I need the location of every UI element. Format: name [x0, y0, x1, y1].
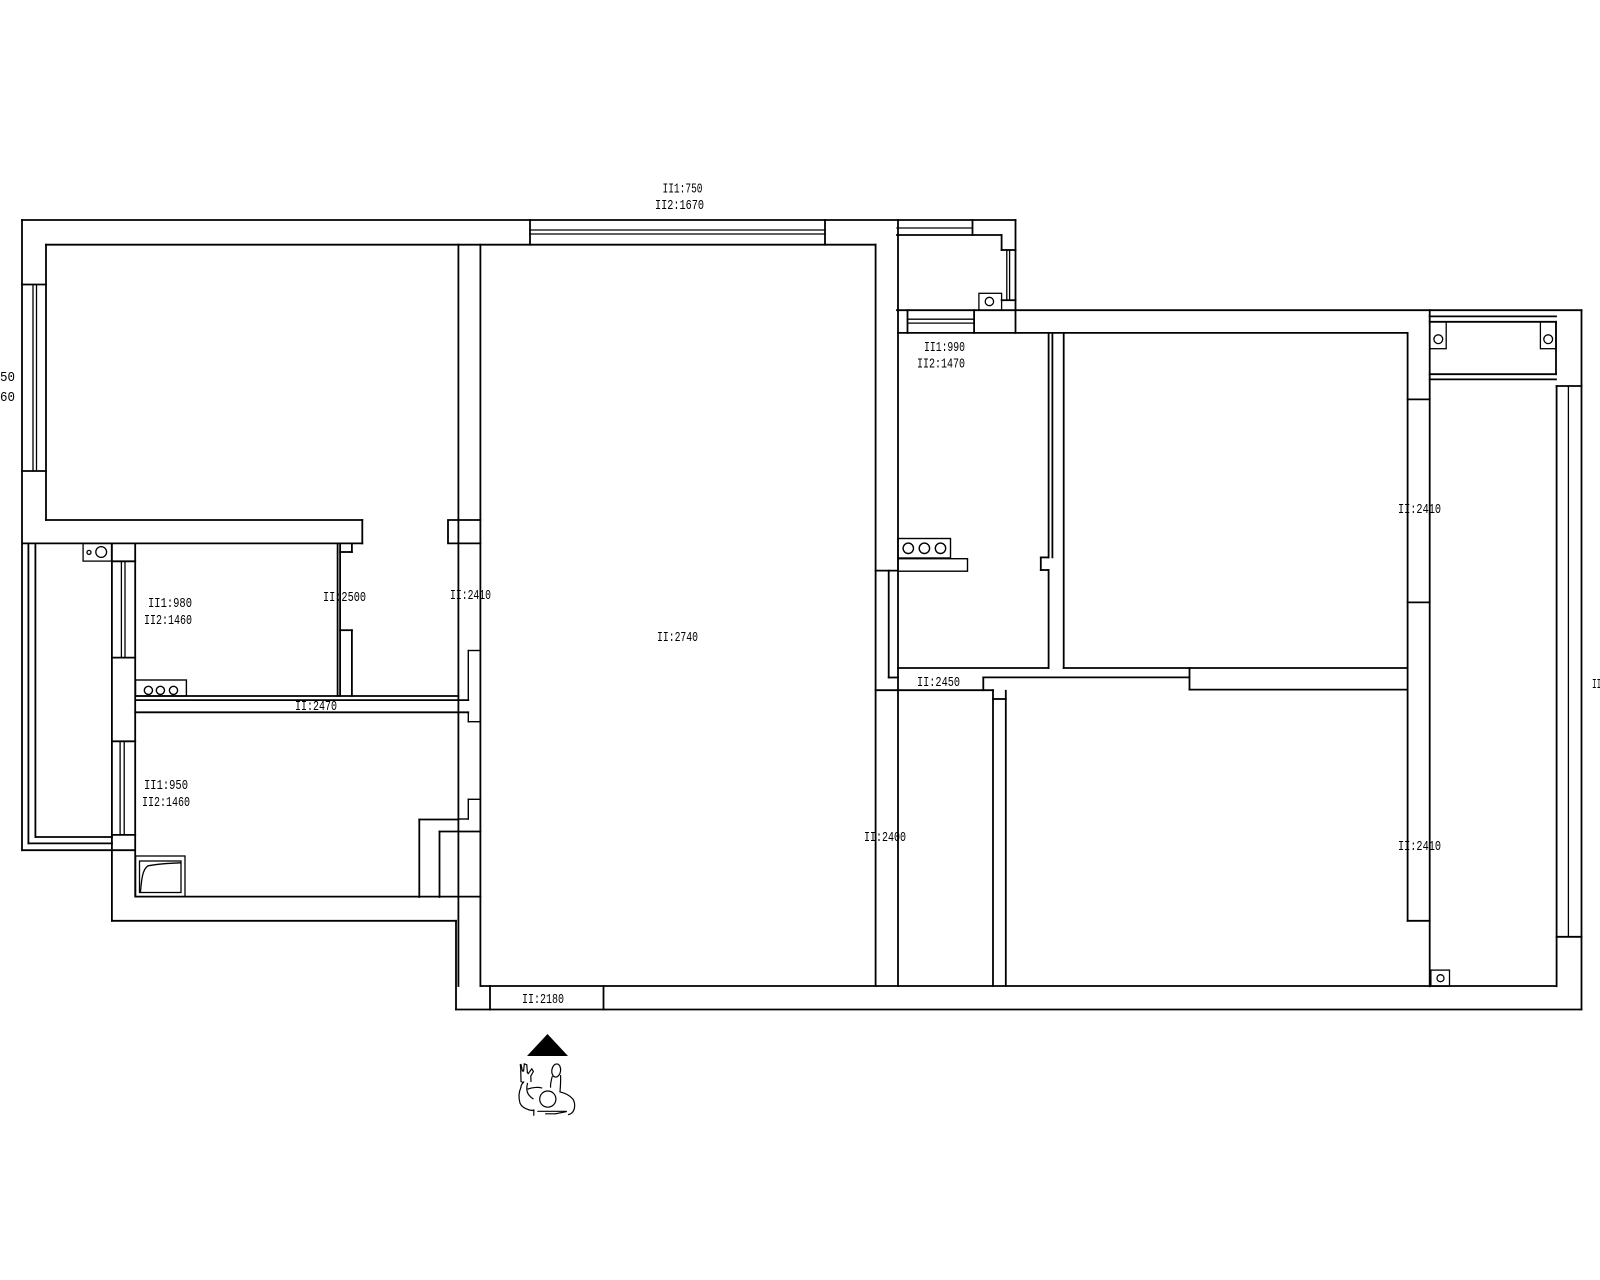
svg-text:60: 60 [0, 390, 15, 406]
svg-text:II:2410: II:2410 [1398, 502, 1441, 518]
svg-text:II2:1670: II2:1670 [655, 198, 704, 214]
svg-text:II:2450: II:2450 [917, 675, 960, 691]
svg-text:II:2740: II:2740 [657, 630, 698, 646]
svg-text:II1:750: II1:750 [663, 182, 703, 198]
svg-text:II2:1460: II2:1460 [142, 795, 190, 811]
svg-text:II:2410: II:2410 [1398, 839, 1441, 855]
svg-text:II2:1460: II2:1460 [144, 613, 192, 629]
svg-text:II2:1470: II2:1470 [917, 357, 965, 373]
svg-text:II:2410: II:2410 [450, 588, 491, 604]
svg-text:II:2500: II:2500 [323, 590, 366, 606]
svg-text:II:2180: II:2180 [522, 992, 564, 1008]
svg-text:50: 50 [0, 370, 15, 386]
svg-text:II:2400: II:2400 [864, 830, 906, 846]
svg-text:II1:990: II1:990 [924, 340, 965, 356]
svg-text:II:2470: II:2470 [295, 699, 337, 715]
svg-text:II:: II: [1592, 677, 1600, 693]
svg-text:II1:980: II1:980 [148, 596, 192, 612]
svg-text:II1:950: II1:950 [144, 778, 188, 794]
